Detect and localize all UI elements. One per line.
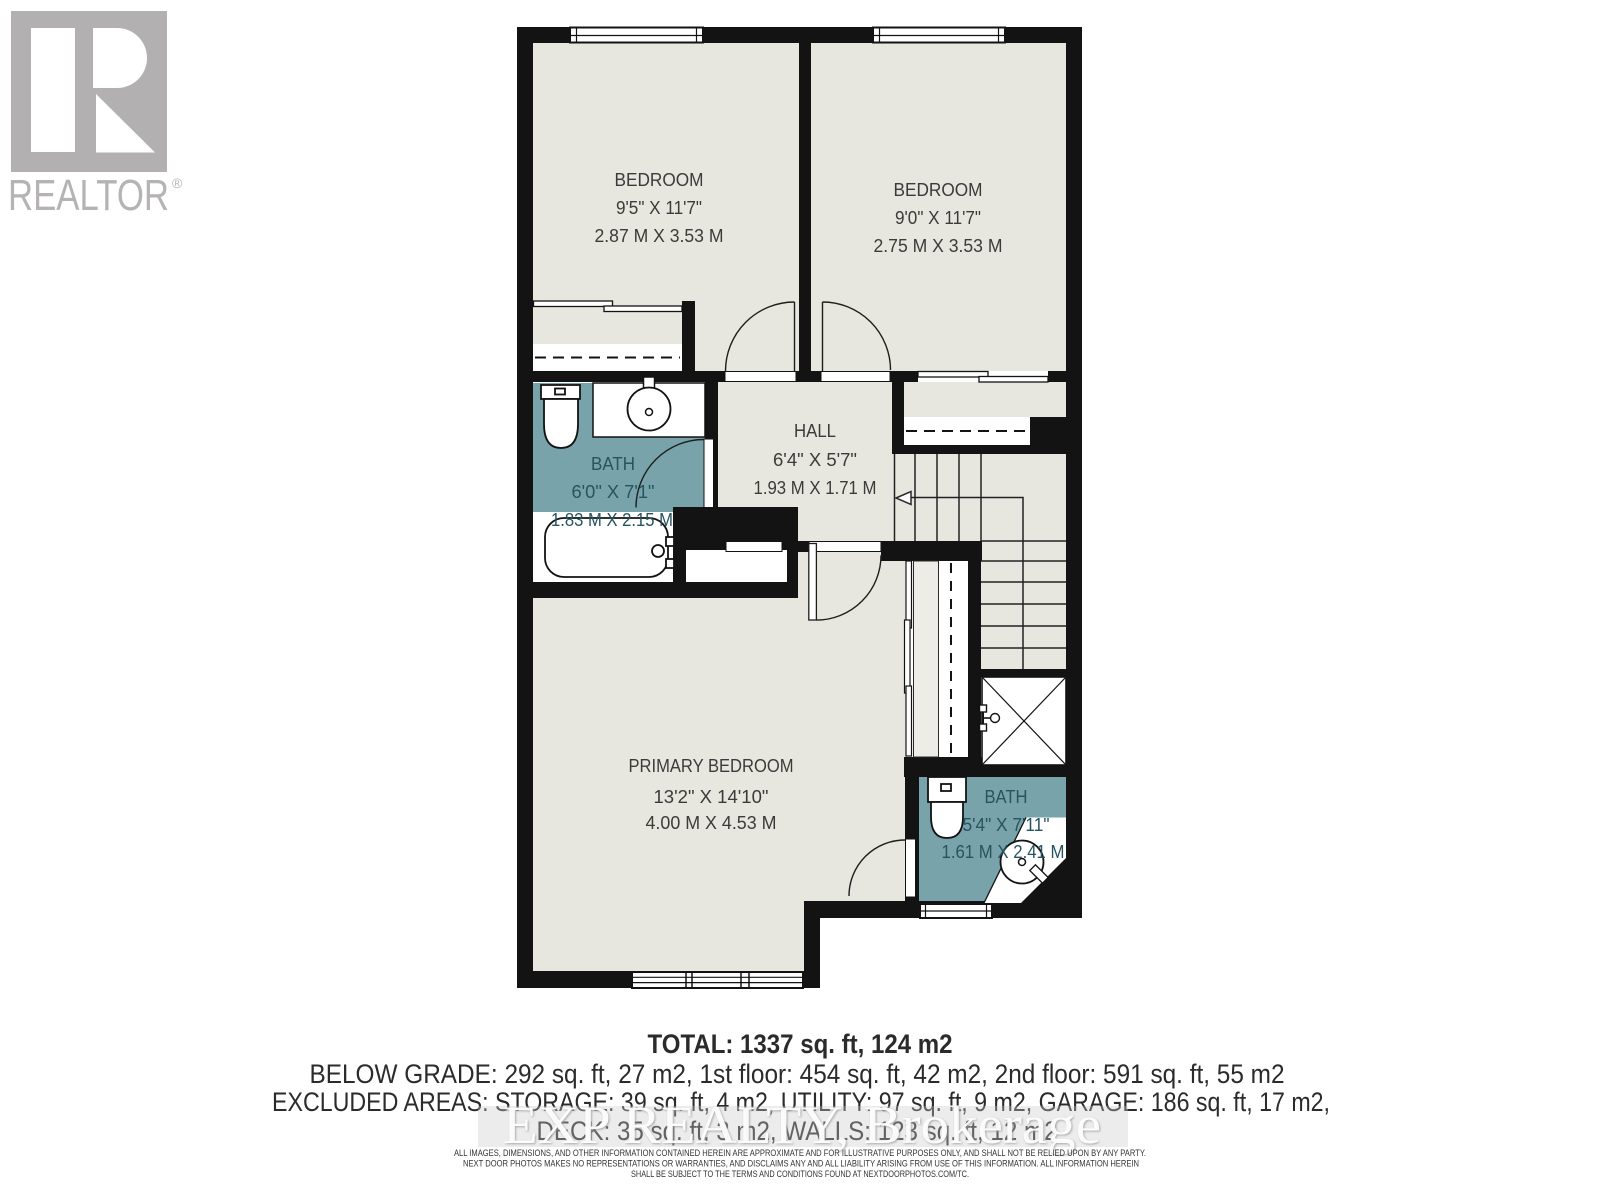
- svg-text:BEDROOM: BEDROOM: [615, 170, 704, 190]
- svg-text:1.61 M X 2.41 M: 1.61 M X 2.41 M: [942, 842, 1065, 862]
- svg-text:TOTAL: 1337 sq. ft, 124 m2: TOTAL: 1337 sq. ft, 124 m2: [648, 1029, 953, 1059]
- svg-text:1.83 M X 2.15 M: 1.83 M X 2.15 M: [551, 510, 673, 530]
- svg-text:BATH: BATH: [985, 787, 1028, 807]
- svg-text:6'4" X 5'7": 6'4" X 5'7": [773, 450, 857, 470]
- svg-text:5'4" X 7'11": 5'4" X 7'11": [963, 815, 1050, 835]
- svg-text:HALL: HALL: [794, 421, 836, 441]
- svg-text:6'0" X 7'1": 6'0" X 7'1": [572, 482, 655, 502]
- svg-text:2.75 M X 3.53 M: 2.75 M X 3.53 M: [874, 236, 1003, 256]
- svg-text:ALL IMAGES, DIMENSIONS, AND OT: ALL IMAGES, DIMENSIONS, AND OTHER INFORM…: [454, 1148, 1146, 1158]
- svg-text:2.87 M X 3.53 M: 2.87 M X 3.53 M: [595, 226, 724, 246]
- svg-text:4.00 M X 4.53 M: 4.00 M X 4.53 M: [646, 813, 777, 833]
- svg-text:BEDROOM: BEDROOM: [894, 180, 983, 200]
- svg-text:SHALL BE SUBJECT TO THE TERMS: SHALL BE SUBJECT TO THE TERMS AND CONDIT…: [631, 1169, 969, 1179]
- svg-text:BELOW GRADE: 292 sq. ft, 27 m2: BELOW GRADE: 292 sq. ft, 27 m2, 1st floo…: [310, 1059, 1285, 1089]
- svg-text:REALTOR: REALTOR: [8, 171, 169, 220]
- svg-text:NEXT DOOR PHOTOS MAKES NO REPR: NEXT DOOR PHOTOS MAKES NO REPRESENTATION…: [463, 1159, 1139, 1169]
- svg-text:1.93 M X 1.71 M: 1.93 M X 1.71 M: [754, 478, 877, 498]
- svg-text:®: ®: [172, 175, 183, 191]
- svg-text:13'2" X 14'10": 13'2" X 14'10": [654, 787, 769, 807]
- svg-text:9'5" X 11'7": 9'5" X 11'7": [616, 198, 702, 218]
- svg-text:9'0" X 11'7": 9'0" X 11'7": [895, 208, 981, 228]
- svg-text:BATH: BATH: [591, 454, 635, 474]
- svg-text:EXP REALTY, Brokerage: EXP REALTY, Brokerage: [503, 1095, 1101, 1155]
- svg-text:PRIMARY BEDROOM: PRIMARY BEDROOM: [629, 756, 794, 776]
